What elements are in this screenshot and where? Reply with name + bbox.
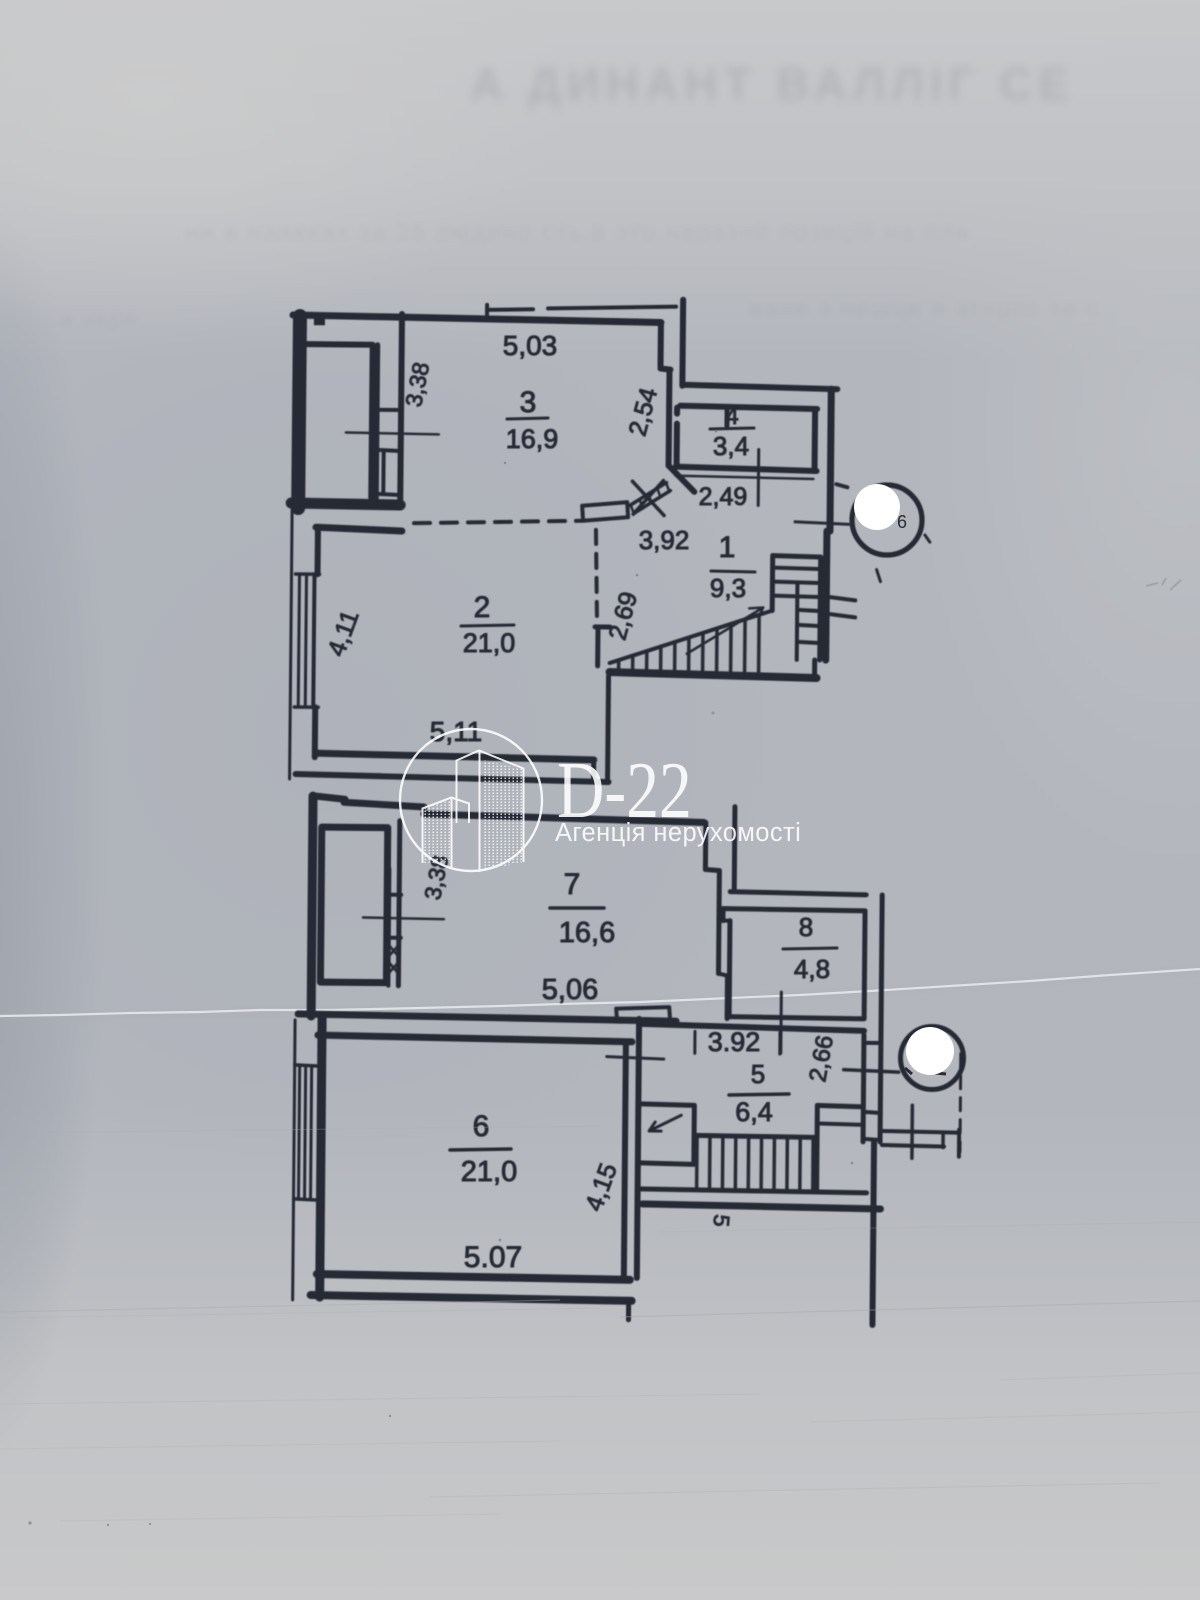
- svg-text:ване з нешце в этнроз та с: ване з нешце в этнроз та с: [750, 295, 1100, 322]
- svg-text:4: 4: [725, 403, 738, 430]
- svg-text:7: 7: [564, 868, 581, 901]
- svg-text:8: 8: [799, 912, 813, 942]
- svg-text:А ДИНАНТ ВАЛЛІГ СЕ: А ДИНАНТ ВАЛЛІГ СЕ: [470, 58, 1075, 110]
- svg-text:3,92: 3,92: [639, 525, 690, 555]
- svg-text:а нере: а нере: [60, 306, 139, 331]
- svg-text:6,4: 6,4: [735, 1097, 773, 1127]
- svg-text:1: 1: [719, 531, 736, 564]
- svg-text:2,49: 2,49: [699, 483, 748, 511]
- svg-text:Агенція нерухомості: Агенція нерухомості: [555, 819, 801, 847]
- svg-text:16,9: 16,9: [506, 424, 559, 454]
- svg-text:5.07: 5.07: [464, 1241, 522, 1274]
- svg-text:21,0: 21,0: [463, 628, 516, 658]
- svg-text:6: 6: [473, 1110, 490, 1143]
- svg-text:2: 2: [474, 591, 491, 624]
- svg-text:4,8: 4,8: [794, 954, 830, 984]
- svg-text:5,06: 5,06: [542, 974, 598, 1006]
- svg-text:3: 3: [520, 386, 537, 419]
- svg-text:3,4: 3,4: [713, 431, 749, 461]
- svg-text:5: 5: [751, 1059, 765, 1089]
- svg-text:5: 5: [708, 1213, 734, 1227]
- svg-text:3.92: 3.92: [708, 1027, 761, 1057]
- svg-text:21,0: 21,0: [461, 1156, 517, 1188]
- svg-text:ни в наявках за 25 людино сть: ни в наявках за 25 людино сть в это нара…: [185, 219, 970, 246]
- svg-text:9,3: 9,3: [710, 573, 746, 603]
- svg-text:5,03: 5,03: [503, 330, 558, 361]
- svg-text:16,6: 16,6: [559, 917, 615, 949]
